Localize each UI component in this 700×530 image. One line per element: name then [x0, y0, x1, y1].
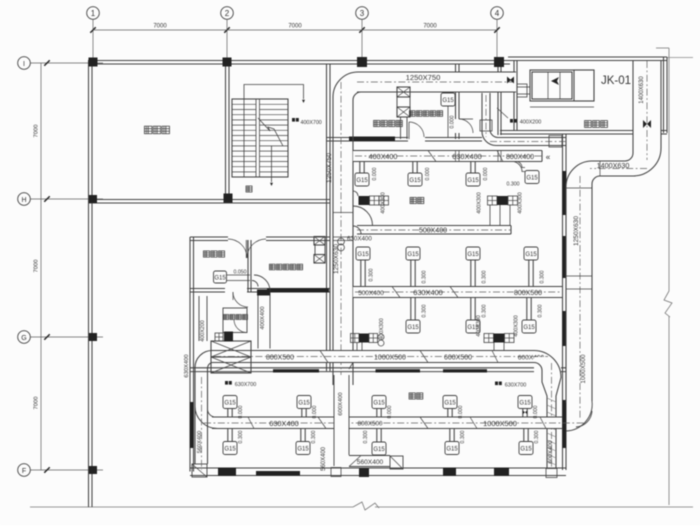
- svg-text:560X400: 560X400: [357, 459, 384, 466]
- svg-text:400X200: 400X200: [520, 120, 542, 126]
- svg-text:1250X630: 1250X630: [333, 244, 340, 274]
- svg-text:0.300: 0.300: [534, 430, 540, 443]
- svg-text:I: I: [23, 61, 25, 68]
- svg-text:G15: G15: [224, 400, 236, 406]
- svg-text:JK-01: JK-01: [601, 75, 631, 87]
- svg-text:400X200: 400X200: [200, 320, 206, 342]
- svg-text:800X400: 800X400: [506, 154, 534, 161]
- svg-text:600X400: 600X400: [548, 440, 554, 463]
- svg-text:G15: G15: [356, 178, 368, 184]
- svg-text:0.300: 0.300: [422, 270, 428, 283]
- svg-text:0.000: 0.000: [458, 405, 464, 418]
- svg-text:400X300: 400X300: [477, 192, 483, 214]
- svg-text:600X500: 600X500: [444, 354, 472, 361]
- svg-text:400X300: 400X300: [381, 192, 387, 214]
- svg-text:7000: 7000: [34, 125, 40, 138]
- svg-text:G15: G15: [214, 275, 226, 281]
- svg-text:G15: G15: [373, 447, 385, 453]
- svg-text:630X400: 630X400: [184, 354, 190, 377]
- svg-text:800X500: 800X500: [514, 290, 542, 297]
- svg-text:0.000: 0.000: [425, 167, 431, 180]
- svg-text:630X700: 630X700: [505, 383, 527, 389]
- svg-text:0.300: 0.300: [422, 304, 428, 317]
- svg-text:1250X750: 1250X750: [326, 153, 333, 183]
- svg-text:1000X500: 1000X500: [580, 354, 587, 384]
- svg-text:630X400: 630X400: [269, 419, 299, 428]
- svg-text:G15: G15: [357, 252, 369, 258]
- svg-text:G15: G15: [520, 446, 532, 452]
- svg-text:7000: 7000: [34, 260, 40, 273]
- svg-text:500X400: 500X400: [419, 228, 447, 235]
- svg-text:4: 4: [495, 9, 500, 18]
- svg-text:0.000: 0.000: [372, 167, 378, 180]
- svg-text:1400X630: 1400X630: [639, 76, 645, 104]
- svg-text:1000X500: 1000X500: [483, 419, 517, 428]
- svg-text:630X700: 630X700: [235, 382, 257, 388]
- svg-text:G15: G15: [523, 325, 535, 331]
- svg-text:0.000: 0.000: [312, 405, 318, 418]
- svg-text:G15: G15: [467, 252, 479, 258]
- svg-text:G15: G15: [407, 325, 419, 331]
- svg-text:0.300: 0.300: [363, 430, 369, 443]
- svg-text:G15: G15: [442, 98, 454, 104]
- svg-text:1250X750: 1250X750: [406, 73, 441, 82]
- svg-text:600X400: 600X400: [338, 392, 344, 415]
- svg-text:400X300: 400X300: [514, 315, 520, 337]
- svg-text:630X400: 630X400: [347, 236, 372, 243]
- svg-text:7000: 7000: [288, 24, 302, 30]
- svg-text:G15: G15: [525, 252, 537, 258]
- svg-text:0.000: 0.000: [533, 405, 539, 418]
- svg-text:500X400: 500X400: [358, 290, 384, 297]
- svg-text:0.300: 0.300: [482, 270, 488, 283]
- svg-text:F: F: [22, 468, 26, 475]
- svg-text:G15: G15: [409, 178, 421, 184]
- svg-text:800X500: 800X500: [358, 421, 383, 428]
- svg-text:400X300: 400X300: [518, 192, 524, 214]
- svg-text:G15: G15: [224, 446, 236, 452]
- svg-text:400X400: 400X400: [369, 152, 398, 161]
- svg-text:0.300: 0.300: [482, 304, 488, 317]
- svg-text:0.000: 0.000: [387, 405, 393, 418]
- svg-text:G15: G15: [526, 175, 538, 181]
- svg-text:0.300: 0.300: [540, 270, 546, 283]
- svg-text:7000: 7000: [34, 397, 40, 410]
- svg-text:400X300: 400X300: [476, 315, 482, 337]
- svg-text:400X400: 400X400: [260, 306, 266, 329]
- svg-text:1000X500: 1000X500: [374, 354, 406, 361]
- svg-text:630X400: 630X400: [413, 288, 443, 297]
- svg-text:2: 2: [225, 9, 230, 18]
- svg-text:400X700: 400X700: [301, 120, 322, 126]
- svg-text:1400X630: 1400X630: [597, 161, 630, 170]
- svg-text:0.000: 0.000: [450, 115, 456, 128]
- svg-text:0.300: 0.300: [507, 182, 520, 188]
- svg-text:G15: G15: [467, 178, 479, 184]
- svg-text:G15: G15: [446, 446, 458, 452]
- svg-text:800X500: 800X500: [266, 354, 294, 361]
- svg-text:0.300: 0.300: [311, 430, 317, 443]
- svg-text:G15: G15: [298, 400, 310, 406]
- svg-text:1250X630: 1250X630: [573, 216, 580, 246]
- svg-text:G15: G15: [444, 400, 456, 406]
- svg-text:G15: G15: [373, 400, 385, 406]
- svg-text:7000: 7000: [423, 24, 437, 30]
- svg-text:560X400: 560X400: [197, 431, 203, 453]
- svg-text:«: «: [546, 153, 551, 162]
- svg-text:G: G: [21, 335, 26, 342]
- svg-text:3: 3: [360, 9, 365, 18]
- svg-text:G15: G15: [519, 400, 531, 406]
- svg-text:560X400: 560X400: [321, 446, 327, 471]
- svg-text:0.000: 0.000: [483, 167, 489, 180]
- svg-text:0.300: 0.300: [538, 304, 544, 317]
- svg-text:H: H: [21, 197, 26, 204]
- svg-text:630X400: 630X400: [452, 152, 482, 161]
- svg-text:0.000: 0.000: [238, 405, 244, 418]
- svg-text:G15: G15: [297, 446, 309, 452]
- svg-text:7000: 7000: [153, 24, 167, 30]
- svg-text:0.300: 0.300: [238, 430, 244, 443]
- svg-text:0.300: 0.300: [369, 268, 375, 281]
- svg-text:G15: G15: [407, 252, 419, 258]
- svg-text:0.300: 0.300: [460, 430, 466, 443]
- svg-text:1: 1: [91, 9, 96, 18]
